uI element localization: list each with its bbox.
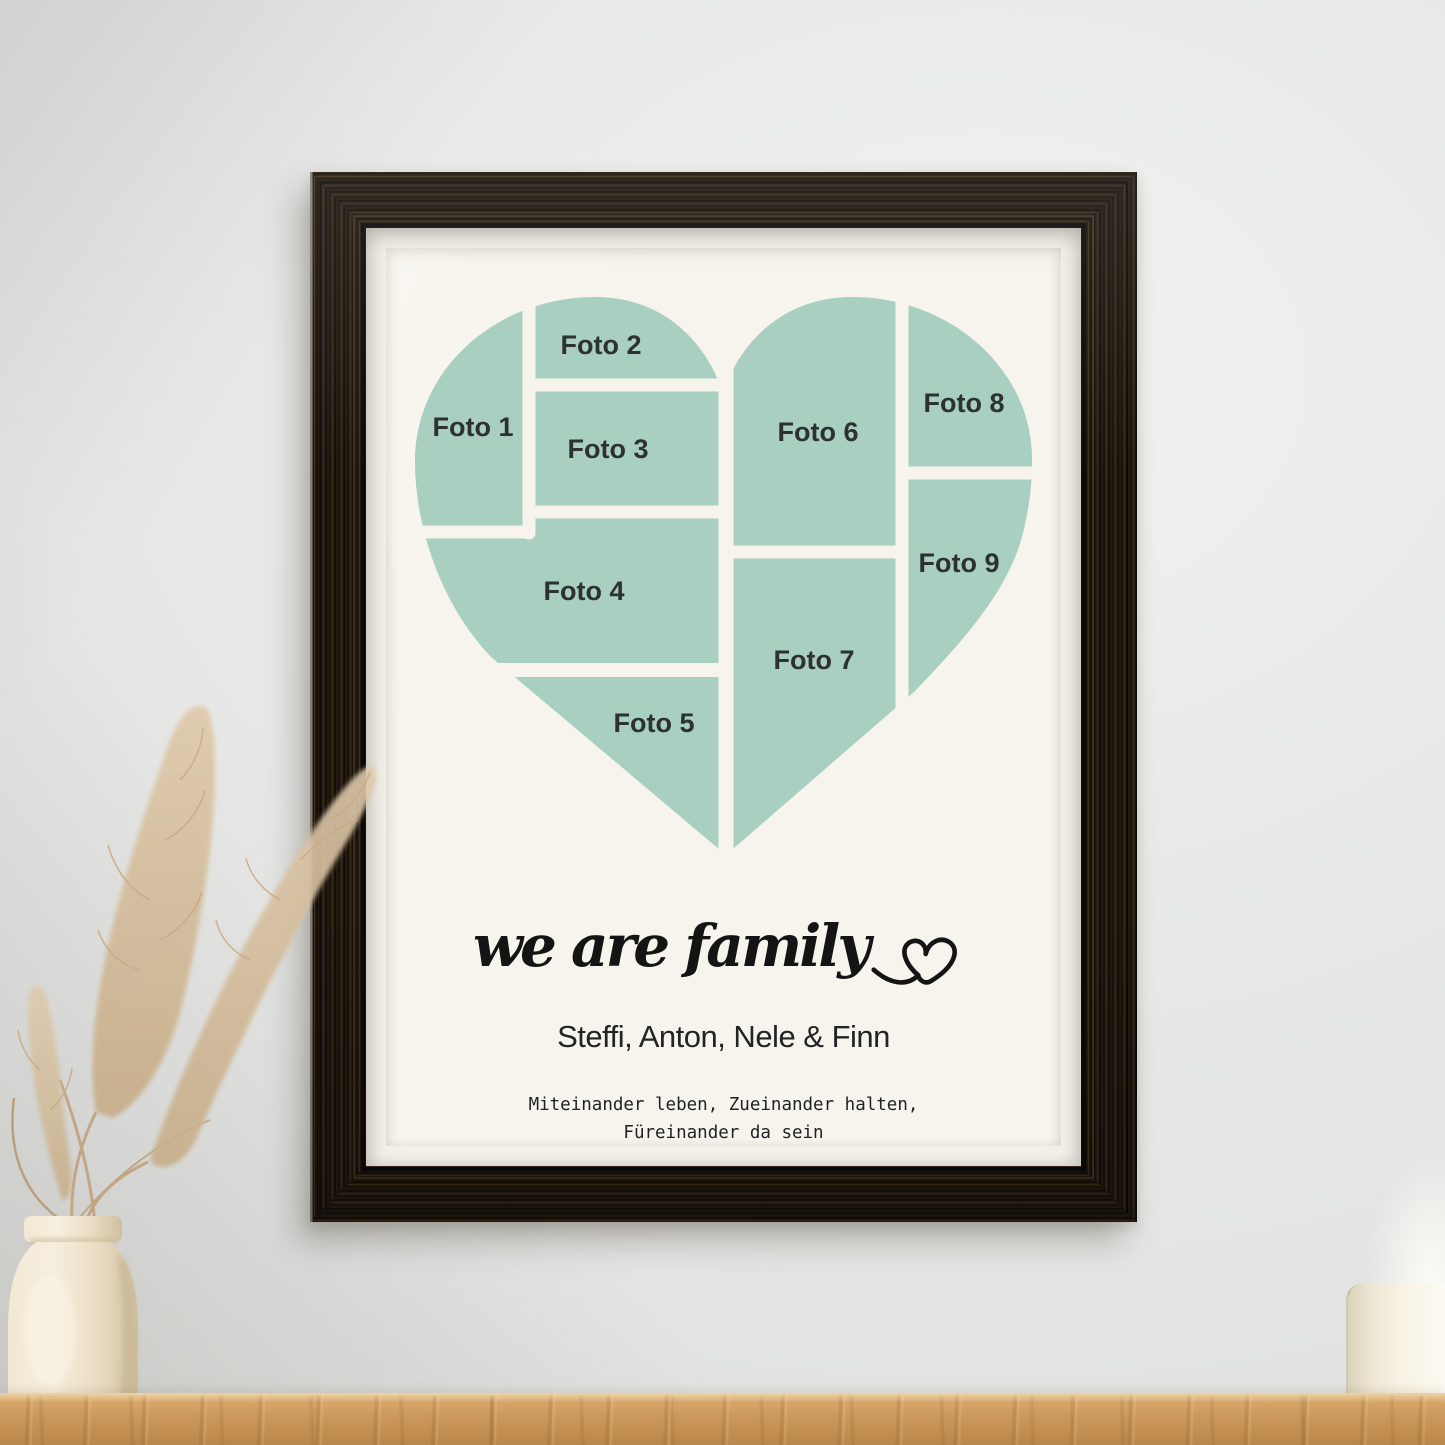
photo-label-7: Foto 7 — [774, 645, 855, 675]
photo-label-2: Foto 2 — [561, 330, 642, 360]
photo-label-5: Foto 5 — [614, 708, 695, 738]
poster-quote: Miteinander leben, Zueinander halten, Fü… — [386, 1091, 1061, 1147]
family-names: Steffi, Anton, Nele & Finn — [386, 1018, 1061, 1055]
photo-label-9: Foto 9 — [919, 548, 1000, 578]
photo-label-8: Foto 8 — [924, 388, 1005, 418]
script-title: we are family — [473, 906, 868, 986]
pillar-candle — [1346, 1284, 1445, 1398]
heart-flourish-icon — [870, 932, 974, 1000]
poster-title-row: we are family — [386, 906, 1061, 986]
heart-collage-poster: Foto 1 Foto 2 Foto 3 Foto 4 Foto 5 Foto … — [386, 248, 1061, 1146]
ceramic-vase — [8, 1216, 138, 1398]
pampas-grass-decor — [0, 640, 470, 1400]
quote-line-1: Miteinander leben, Zueinander halten, — [386, 1091, 1061, 1119]
photo-label-1: Foto 1 — [433, 412, 514, 442]
pampas-plumes — [28, 705, 376, 1200]
wooden-shelf — [0, 1393, 1445, 1445]
photo-label-6: Foto 6 — [778, 417, 859, 447]
product-photo-scene: Foto 1 Foto 2 Foto 3 Foto 4 Foto 5 Foto … — [0, 0, 1445, 1445]
heart-photo-collage: Foto 1 Foto 2 Foto 3 Foto 4 Foto 5 Foto … — [411, 293, 1036, 855]
quote-line-2: Füreinander da sein — [386, 1119, 1061, 1147]
photo-label-4: Foto 4 — [544, 576, 625, 606]
photo-label-3: Foto 3 — [568, 434, 649, 464]
